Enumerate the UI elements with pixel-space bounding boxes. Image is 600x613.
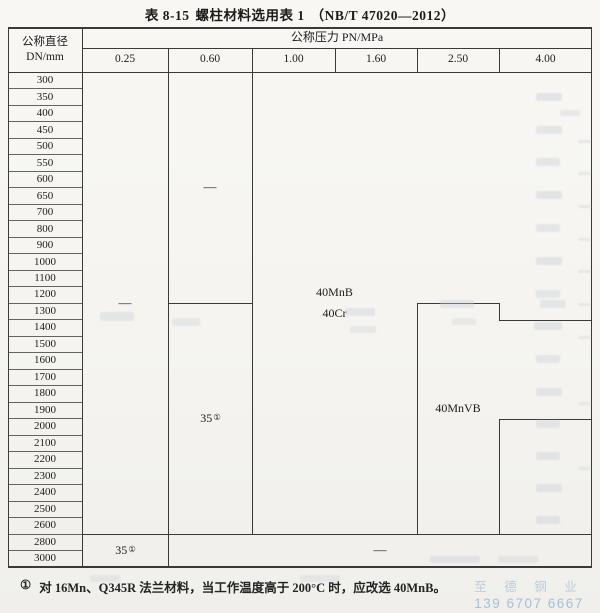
row-separator-line — [8, 468, 82, 469]
pressure-col-header-0.25: 0.25 — [82, 48, 168, 73]
step-400-top-line — [499, 320, 592, 321]
dn-row-label: 450 — [8, 121, 82, 137]
bleed-through-mark — [430, 556, 480, 563]
pressure-col-header-0.60: 0.60 — [168, 48, 252, 73]
row-separator-line — [8, 154, 82, 155]
row-separator-line — [8, 451, 82, 452]
row-separator-line — [8, 550, 82, 551]
row-separator-line — [8, 369, 82, 370]
pressure-col-header-1.00: 1.00 — [252, 48, 335, 73]
table-number: 表 8-15 — [145, 8, 190, 23]
row-separator-line — [8, 501, 82, 502]
bleed-through-mark — [536, 484, 562, 492]
dn-row-label: 1000 — [8, 253, 82, 269]
dn-row-label: 500 — [8, 138, 82, 154]
material-35: 35 — [200, 412, 212, 425]
bleed-through-mark — [536, 93, 562, 101]
watermark-company: 至 德 钢 业 — [468, 576, 590, 595]
footnote-marker-icon: ① — [20, 577, 31, 593]
dn-row-label: 300 — [8, 72, 82, 88]
bleed-through-mark — [350, 326, 376, 333]
row-separator-line — [8, 484, 82, 485]
row-separator-line — [8, 319, 82, 320]
dn-row-label: 1100 — [8, 270, 82, 286]
row-header-line1: 公称直径 — [22, 36, 68, 49]
pressure-col-header-1.60: 1.60 — [335, 48, 417, 73]
bleed-through-mark — [536, 191, 562, 199]
table-border-right — [591, 27, 592, 568]
dn-row-label: 2000 — [8, 418, 82, 434]
dn-row-label: 1900 — [8, 402, 82, 418]
bleed-through-mark — [100, 312, 134, 321]
bleed-through-mark — [536, 126, 562, 134]
dn-row-label: 1300 — [8, 303, 82, 319]
bleed-through-mark — [440, 300, 474, 308]
dn-row-label: 1600 — [8, 352, 82, 368]
row-separator-line — [8, 336, 82, 337]
material-40mnb: 40MnB — [316, 286, 353, 299]
dn-row-label: 2300 — [8, 468, 82, 484]
bleed-through-mark — [578, 205, 591, 208]
bleed-through-mark — [536, 257, 562, 265]
dn-row-label: 1500 — [8, 336, 82, 352]
cell-060-upper-dash: — — [168, 72, 252, 303]
material-40cr: 40Cr — [323, 307, 347, 320]
dn-row-label: 650 — [8, 187, 82, 203]
row-separator-line — [8, 171, 82, 172]
bleed-through-mark — [578, 303, 591, 306]
bleed-through-mark — [578, 336, 591, 339]
dn-row-label: 2100 — [8, 435, 82, 451]
bleed-through-mark — [536, 224, 560, 232]
cell-060-lower-material: 35① — [168, 303, 252, 534]
row-header-line2: DN/mm — [26, 51, 64, 64]
row-separator-line — [8, 105, 82, 106]
dn-row-label: 400 — [8, 105, 82, 121]
row-separator-line — [8, 187, 82, 188]
row-separator-line — [8, 138, 82, 139]
dn-row-label: 1400 — [8, 319, 82, 335]
bleed-through-mark — [536, 355, 560, 363]
dn-row-label: 2200 — [8, 451, 82, 467]
watermark: 至 德 钢 业 139 6707 6667 — [468, 576, 590, 611]
dn-row-label: 2800 — [8, 534, 82, 550]
bleed-through-mark — [578, 270, 591, 273]
pressure-col-header-4.00: 4.00 — [499, 48, 592, 73]
pressure-header-cell: 公称压力 PN/MPa — [82, 27, 592, 47]
cell-bottom-left-material: 35① — [82, 534, 168, 567]
material-35-bottom: 35 — [115, 544, 127, 557]
bleed-through-mark — [534, 322, 562, 330]
dn-row-label: 1200 — [8, 286, 82, 302]
row-separator-line — [8, 385, 82, 386]
bleed-through-mark — [300, 575, 340, 582]
bleed-through-mark — [560, 110, 580, 116]
footnote-ref-icon: ① — [213, 413, 221, 422]
bleed-through-mark — [536, 420, 560, 428]
row-separator-line — [8, 418, 82, 419]
row-separator-line — [8, 286, 82, 287]
table-title-text: 螺柱材料选用表 1 — [196, 8, 305, 23]
row-separator-line — [8, 517, 82, 518]
bleed-through-mark — [172, 318, 200, 326]
row-separator-line — [8, 270, 82, 271]
row-separator-line — [8, 303, 82, 304]
row-separator-line — [8, 435, 82, 436]
bleed-through-mark — [536, 290, 560, 298]
row-separator-line — [8, 402, 82, 403]
bleed-through-mark — [536, 388, 562, 396]
pressure-col-header-2.50: 2.50 — [417, 48, 499, 73]
bleed-through-mark — [452, 318, 476, 325]
watermark-phone: 139 6707 6667 — [468, 596, 590, 611]
bleed-through-mark — [345, 308, 375, 316]
bleed-through-mark — [578, 140, 591, 143]
dn-row-label: 1700 — [8, 369, 82, 385]
row-separator-line — [8, 88, 82, 89]
dn-row-label: 700 — [8, 204, 82, 220]
footnote-ref-icon: ① — [128, 545, 136, 554]
dn-row-label: 2600 — [8, 517, 82, 533]
bleed-through-mark — [540, 300, 566, 308]
row-separator-line — [8, 121, 82, 122]
dn-row-label: 2400 — [8, 484, 82, 500]
dn-row-label: 1800 — [8, 385, 82, 401]
bleed-through-mark — [90, 575, 120, 582]
bleed-through-mark — [578, 238, 591, 241]
scanned-page: 表 8-15螺柱材料选用表 1（NB/T 47020—2012） 公称直径 DN… — [0, 0, 600, 613]
row-separator-line — [8, 534, 82, 535]
dn-row-label: 350 — [8, 88, 82, 104]
bleed-through-mark — [498, 556, 538, 563]
cell-merged-high-pressure-material: 40MnB 40Cr — [252, 72, 417, 534]
bleed-through-mark — [536, 516, 560, 524]
bleed-through-mark — [578, 402, 591, 405]
dn-row-label: 800 — [8, 220, 82, 236]
cell-250-material: 40MnVB — [417, 303, 499, 534]
page-title: 表 8-15螺柱材料选用表 1（NB/T 47020—2012） — [0, 4, 600, 24]
dn-row-label: 3000 — [8, 550, 82, 566]
bleed-through-mark — [578, 172, 591, 175]
row-separator-line — [8, 253, 82, 254]
bleed-through-mark — [536, 158, 560, 166]
bleed-through-mark — [536, 452, 560, 460]
table-standard-ref: （NB/T 47020—2012） — [311, 8, 455, 23]
cell-025-main-dash: — — [82, 72, 168, 534]
footnote: ① 对 16Mn、Q345R 法兰材料，当工作温度高于 200°C 时，应改选 … — [20, 577, 450, 596]
dn-row-label: 2500 — [8, 501, 82, 517]
row-separator-line — [8, 220, 82, 221]
row-separator-line — [8, 352, 82, 353]
row-header-cell: 公称直径 DN/mm — [8, 27, 82, 72]
dn-row-label: 550 — [8, 154, 82, 170]
row-separator-line — [8, 204, 82, 205]
dn-row-label: 600 — [8, 171, 82, 187]
bleed-through-mark — [578, 467, 591, 470]
dn-row-label: 900 — [8, 237, 82, 253]
row-separator-line — [8, 237, 82, 238]
